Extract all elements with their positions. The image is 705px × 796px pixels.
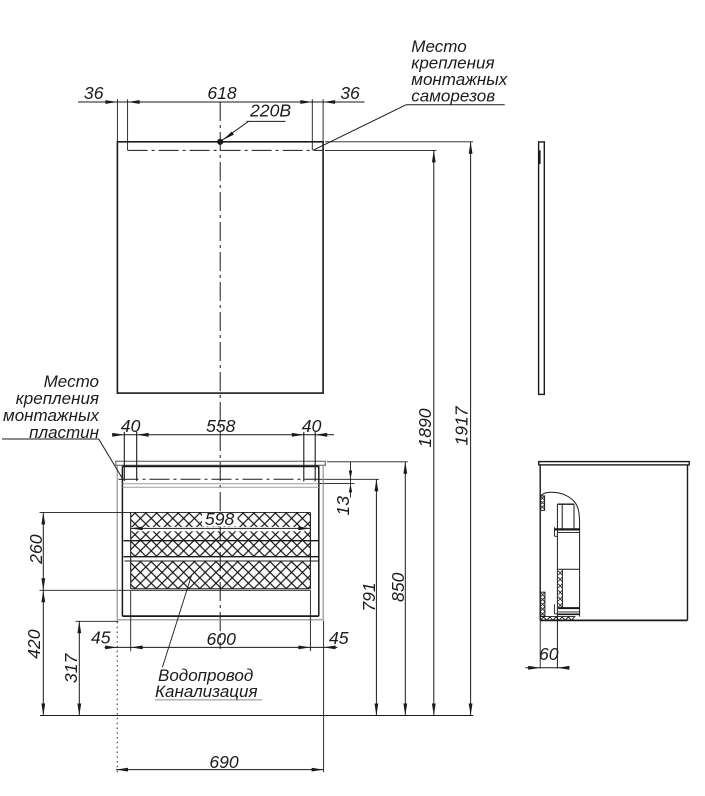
svg-text:36: 36: [340, 83, 360, 103]
svg-text:260: 260: [26, 534, 46, 565]
svg-text:саморезов: саморезов: [411, 86, 495, 105]
svg-text:690: 690: [209, 752, 239, 772]
svg-text:60: 60: [539, 644, 559, 664]
svg-text:13: 13: [333, 496, 353, 516]
svg-text:36: 36: [84, 83, 104, 103]
svg-text:45: 45: [91, 628, 111, 648]
svg-text:317: 317: [61, 653, 81, 684]
svg-text:1917: 1917: [452, 405, 472, 445]
svg-text:618: 618: [207, 83, 237, 103]
svg-text:220В: 220В: [249, 101, 291, 121]
svg-text:850: 850: [388, 572, 408, 602]
svg-text:40: 40: [121, 416, 141, 436]
svg-text:600: 600: [207, 629, 237, 649]
svg-text:40: 40: [302, 416, 322, 436]
svg-text:45: 45: [329, 628, 349, 648]
svg-text:420: 420: [24, 629, 44, 659]
svg-text:558: 558: [206, 416, 236, 436]
svg-text:791: 791: [359, 582, 379, 611]
svg-text:1890: 1890: [415, 408, 435, 447]
svg-text:Канализация: Канализация: [155, 682, 258, 701]
